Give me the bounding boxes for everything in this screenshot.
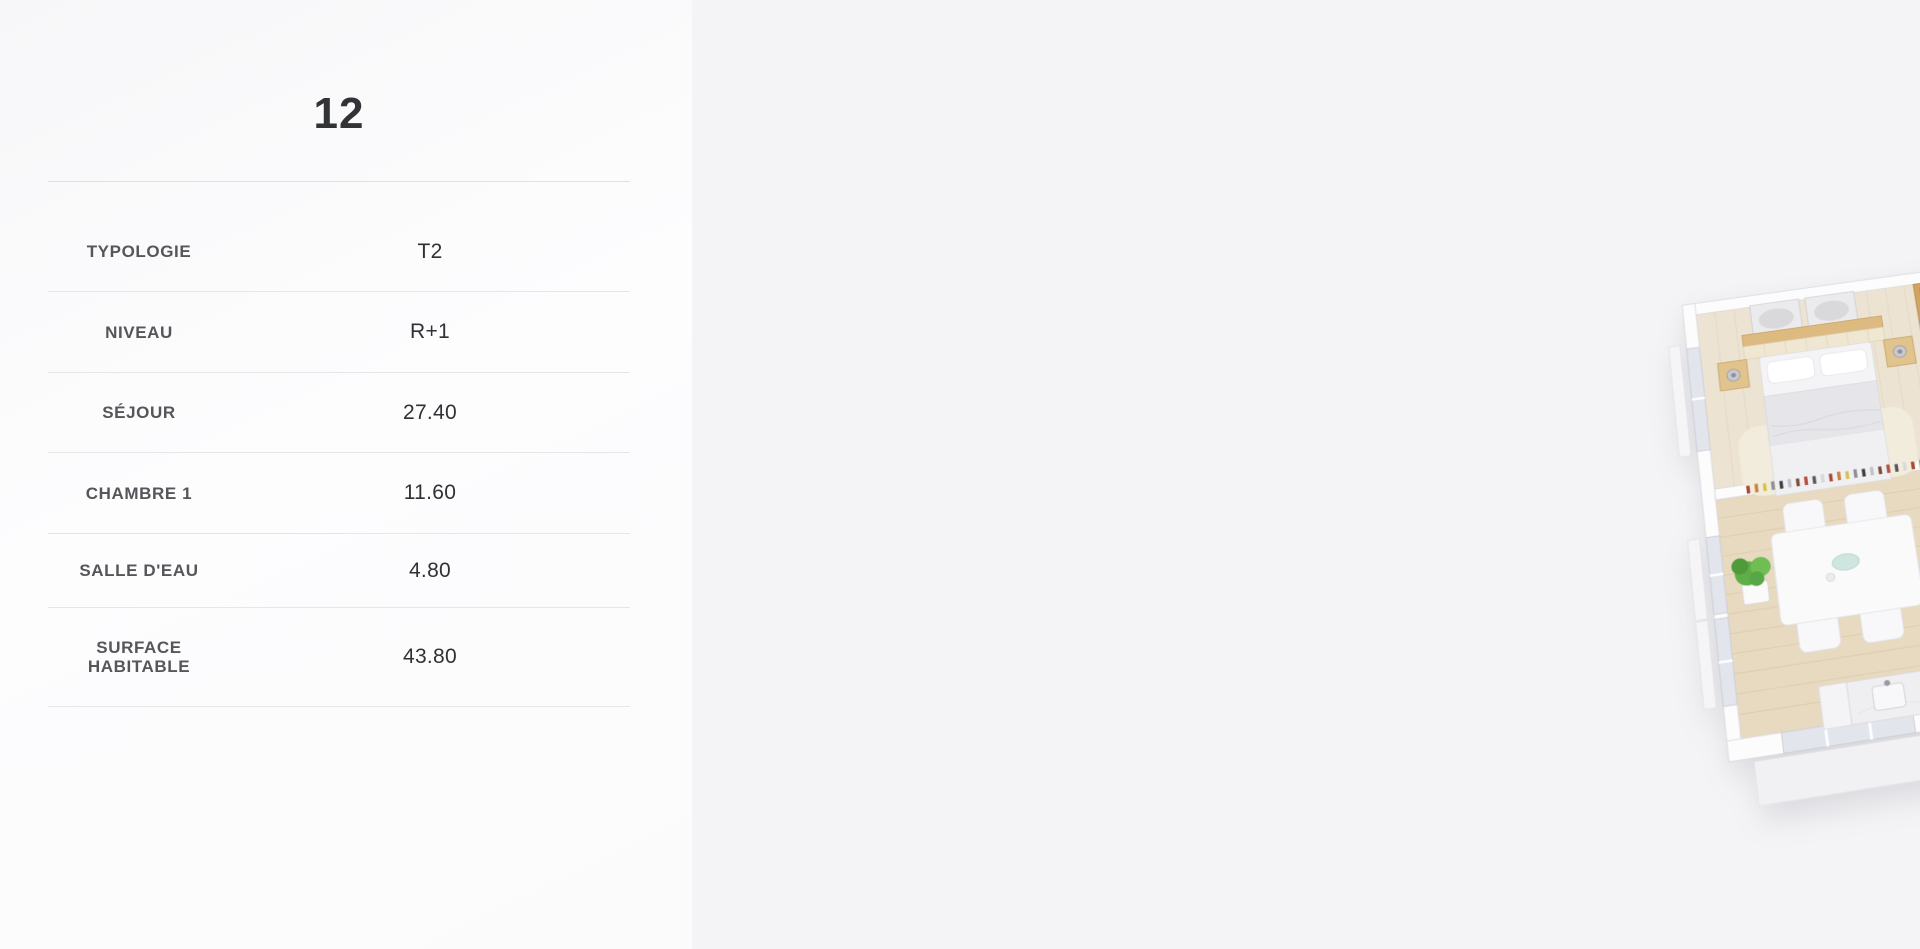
books-wall-art bbox=[1746, 457, 1920, 494]
row-label: CHAMBRE 1 bbox=[48, 484, 230, 503]
apartment-details-panel: 12 TYPOLOGIE T2 NIVEAU R+1 SÉJOUR 27.40 … bbox=[0, 0, 692, 949]
wall-art-frames bbox=[1750, 291, 1859, 338]
kitchen-group bbox=[1819, 657, 1920, 730]
row-value: 11.60 bbox=[230, 481, 630, 505]
windows bbox=[1682, 238, 1920, 762]
table-row: TYPOLOGIE T2 bbox=[48, 212, 630, 292]
potted-plant bbox=[1731, 554, 1775, 606]
row-label: TYPOLOGIE bbox=[48, 242, 230, 261]
nightstands bbox=[1718, 336, 1917, 391]
floors bbox=[1696, 250, 1920, 739]
panel-content: 12 TYPOLOGIE T2 NIVEAU R+1 SÉJOUR 27.40 … bbox=[48, 0, 630, 707]
table-row: SALLE D'EAU 4.80 bbox=[48, 534, 630, 608]
table-row: SÉJOUR 27.40 bbox=[48, 373, 630, 453]
row-value: 4.80 bbox=[230, 559, 630, 583]
title-divider bbox=[48, 181, 630, 182]
table-row: CHAMBRE 1 11.60 bbox=[48, 453, 630, 534]
exterior-balconies bbox=[1663, 236, 1920, 813]
row-value: T2 bbox=[230, 240, 630, 264]
bedroom-group bbox=[1712, 284, 1920, 502]
walls bbox=[1682, 238, 1920, 762]
dining-group bbox=[1725, 486, 1920, 663]
floorplan-3d-viewer[interactable]: ✕ bbox=[692, 0, 1920, 949]
row-label: NIVEAU bbox=[48, 323, 230, 342]
floorplan-3d bbox=[1614, 159, 1920, 821]
details-table: TYPOLOGIE T2 NIVEAU R+1 SÉJOUR 27.40 CHA… bbox=[48, 212, 630, 707]
table-row: NIVEAU R+1 bbox=[48, 292, 630, 373]
wardrobe bbox=[1913, 278, 1920, 439]
row-label: SALLE D'EAU bbox=[48, 561, 230, 580]
bedroom-floor bbox=[1696, 278, 1920, 489]
apartment-detail-overlay: 12 TYPOLOGIE T2 NIVEAU R+1 SÉJOUR 27.40 … bbox=[0, 0, 1920, 949]
floorplan-svg bbox=[1633, 200, 1920, 831]
row-value: 27.40 bbox=[230, 401, 630, 425]
dining-chairs bbox=[1782, 489, 1905, 653]
row-label: SURFACE HABITABLE bbox=[48, 638, 230, 676]
page-title: 12 bbox=[48, 0, 630, 136]
row-label: SÉJOUR bbox=[48, 403, 230, 422]
bed bbox=[1742, 316, 1906, 498]
row-value: 43.80 bbox=[230, 645, 630, 669]
row-value: R+1 bbox=[230, 320, 630, 344]
dining-table bbox=[1770, 514, 1920, 626]
table-row: SURFACE HABITABLE 43.80 bbox=[48, 608, 630, 707]
bedroom-rug bbox=[1736, 404, 1920, 499]
